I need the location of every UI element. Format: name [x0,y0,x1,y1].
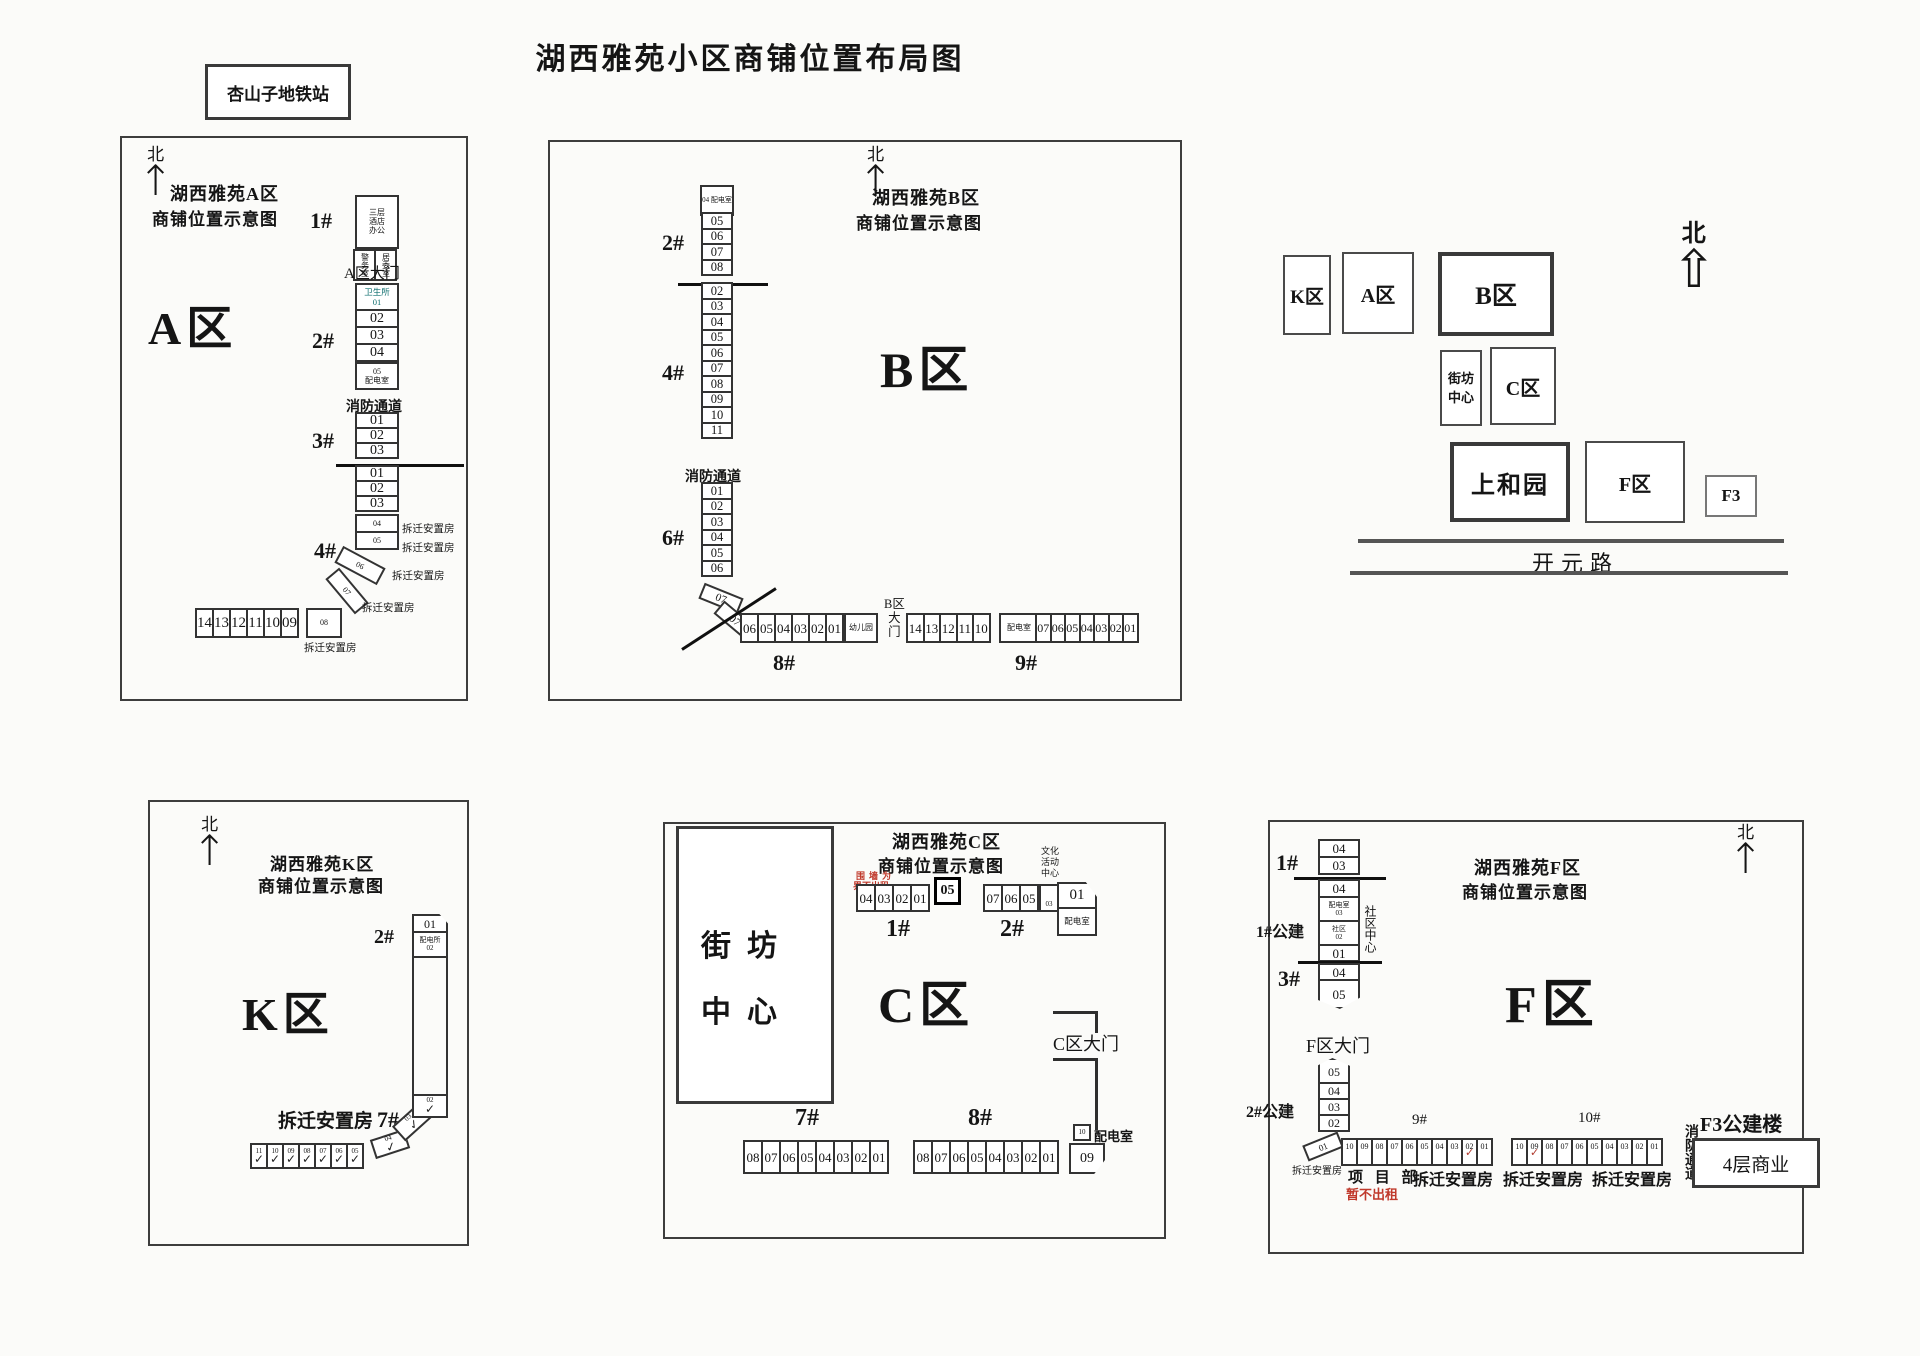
building-1-label: 1# [310,208,332,234]
resettle-cell: 05 [355,531,399,550]
building-2-label: 2# [312,328,334,354]
community-center-side-label: 社区中心 [1362,905,1379,967]
shop-cell: 07 [983,884,1003,912]
shop-cell: 01 ✓ [1646,1138,1663,1166]
jiefang-line: 中心 [1448,388,1474,408]
shop-cell: 05 [797,1140,817,1174]
shop-cell: 06 [701,560,733,578]
cell-number: 05 [1591,1143,1599,1151]
row-1-label: 1# [886,916,910,943]
row-10-label: 10# [1578,1110,1601,1127]
row-2-label: 2# [1000,916,1024,943]
panel-b-subtitle: 商铺位置示意图 [856,209,982,234]
cell-text: 05 [373,368,381,376]
power-room-cell: 配电室 [999,613,1039,643]
shop-cell: 03 [1003,1140,1023,1174]
cell-text: 配电室 [365,377,389,385]
resettle-note: 拆迁安置房 [1503,1166,1583,1190]
power-room-cell: 配电室 03 [1318,896,1360,922]
shop-cell: 01 [1039,1140,1059,1174]
resettle-7-label: 拆迁安置房 7# [278,1106,399,1133]
resettle-note: 拆迁安置房 [402,521,455,536]
gate-bracket-top [1053,1011,1097,1014]
cell-number: 06 [1576,1143,1584,1151]
cell-text: 社区 [1332,926,1346,933]
row-7-cells: 11 ✓ 10 ✓ 09 ✓ 08 ✓ 07 ✓ 06 ✓ 05 ✓ [252,1143,364,1169]
row-1-cells: 04030201 [858,884,930,912]
building-2-label: 2# [662,230,684,256]
gate-c-label: C区大门 [1053,1030,1119,1056]
shop-cell: 02 [851,1140,871,1174]
building-2-label: 2# [374,926,394,949]
check-mark-icon: ✓ [302,1153,312,1165]
cell-number: 08 [1546,1143,1554,1151]
scanned-layout-page: 湖西雅苑小区商铺位置布局图 杏山子地铁站 北 ↑ 湖西雅苑A区 商铺位置示意图 … [0,0,1920,1356]
building-2-cells: 020304 [355,311,399,362]
g2-label: 2#公建 [1246,1098,1294,1122]
panel-b-title: 湖西雅苑B区 [872,184,980,210]
gate-a-label: A区大门 [344,262,400,283]
gate-b-line: B区 [884,598,905,612]
gate-b-line: 大 [884,612,905,626]
jiefang-line: 街坊 [701,921,793,965]
overview-zone-b: B区 [1438,252,1554,336]
cell-text: 三层 [369,209,385,217]
resettle-cell: 08 [306,608,342,638]
cell-text: 02 [427,945,434,952]
row-9-right-cells: 07060504030201 [1037,613,1139,643]
gate-bracket-bottom-leg [1095,1058,1098,1130]
panel-k-subtitle: 商铺位置示意图 [258,872,384,897]
row-8-label: 8# [968,1105,992,1132]
shop-cell: 03 [355,495,399,512]
zone-b-label: B区 [880,330,973,402]
cell-number: 07 [1561,1143,1569,1151]
shop-cell: 08 [743,1140,763,1174]
cell-number: 05 [1421,1143,1429,1151]
community-cell: 社区 02 [1318,920,1360,946]
building-2-cells: 05060708 [701,214,733,276]
cell-number: 09 [1361,1143,1369,1151]
cell-text: 02 [1336,934,1343,941]
gate-b-line: 门 [884,626,905,640]
check-mark-icon: ✓ [1465,1148,1474,1159]
building-6-cells: 010203040506 [701,484,733,577]
kindergarten-cell: 幼儿园 [844,613,878,643]
gate-f-label: F区大门 [1306,1032,1370,1058]
cell-text: 酒店 [369,218,385,226]
shop-cell: 01 [1122,613,1139,643]
check-mark-icon: ✓ [1530,1148,1539,1159]
cell-number: 04 [1606,1143,1614,1151]
cell-number: 07 [1391,1143,1399,1151]
culture-line: 中心 [1041,868,1059,879]
culture-cell: 03 [1039,884,1059,912]
check-mark-icon: ✓ [254,1153,264,1165]
bottom-row-a: 141312111009 [197,608,299,638]
row-8-cells: 0807060504030201 [915,1140,1059,1174]
panel-a-title: 湖西雅苑A区 [170,180,279,206]
shop-cell: 08 [701,259,733,277]
cell-number: 03 [1451,1143,1459,1151]
panel-c-subtitle: 商铺位置示意图 [878,852,1004,877]
not-for-rent-note: 暂不出租 [1346,1184,1398,1203]
shop-cell: 08 [913,1140,933,1174]
page-title: 湖西雅苑小区商铺位置布局图 [536,34,965,78]
zone-c-label: C区 [878,965,974,1037]
shop-cell: 04 [985,1140,1005,1174]
metro-station-box: 杏山子地铁站 [205,64,351,120]
shop-cell: 01 [869,1140,889,1174]
road-line-top [1358,539,1784,543]
shop-cell: 三层 酒店 办公 [355,195,399,249]
cell-number: 01 [1481,1143,1489,1151]
cell-text: 配电室 [1329,902,1350,909]
check-mark-icon: ✓ [384,1138,398,1155]
overview-shangheyuan: 上和园 [1450,442,1570,522]
overview-zone-f: F区 [1585,441,1685,523]
row-2-cells: 070605 [985,884,1039,912]
overview-zone-k: K区 [1283,255,1331,335]
north-arrow-icon: ↑ [1728,841,1763,877]
overview-north: 北 ⇧ [1672,222,1716,295]
f3-commercial-box: 4层商业 [1692,1138,1820,1188]
check-mark-icon: ✓ [425,1102,435,1117]
highlighted-cell-05: 05 [934,877,961,905]
culture-center-label: 文化 活动 中心 [1041,846,1059,878]
culture-line: 文化 [1041,846,1059,857]
panel-c-title: 湖西雅苑C区 [892,828,1001,854]
cell-text: 办公 [369,227,385,235]
jiefang-line: 街坊 [1448,369,1474,389]
building-3-label: 3# [1278,966,1300,992]
cell-number: 08 [1376,1143,1384,1151]
row-10-cells: 10 ✓ 09 ✓ 08 ✓ 07 ✓ 06 ✓ 05 ✓ 04 ✓ 03 ✓ … [1513,1138,1663,1166]
zone-k-label: K区 [242,978,334,1044]
clinic-cell: 卫生所 01 [355,283,399,311]
shop-cell: 04 [856,884,876,912]
shop-cell-diagonal: 02 ✓ [412,1094,448,1118]
shop-cell: 10 [972,613,991,643]
gate-bracket-bottom [1053,1058,1097,1061]
row-7-cells: 0807060504030201 [745,1140,889,1174]
shop-cell: 06 [949,1140,969,1174]
shop-cell: 06 [779,1140,799,1174]
cell-text: 01 [373,298,382,307]
cell-number: 01 [1651,1143,1659,1151]
overview-jiefang-center: 街坊 中心 [1440,350,1482,426]
gate-b-label: B区 大 门 [884,598,905,639]
mini-power-cell: 10 [1073,1124,1091,1141]
building-6-label: 6# [662,525,684,551]
resettle-note: 拆迁安置房 [1592,1166,1672,1190]
shop-cell: 01 [910,884,930,912]
building-2-power: 05 配电室 [355,364,399,390]
shop-cell: 02 [892,884,912,912]
power-room-cell: 05 配电室 [355,362,399,390]
panel-f-north: 北 ↑ [1728,824,1763,877]
building-2-column: 卫生所 01 [355,285,399,311]
cell-number: 03 [1621,1143,1629,1151]
building-4-side-cells: 04 05 [355,516,399,550]
cell-text: 03 [1336,910,1343,917]
shop-cell: 02 [1021,1140,1041,1174]
zone-f-label: F区 [1505,962,1599,1037]
building-strip [412,956,448,1096]
cell-number: 04 [1436,1143,1444,1151]
check-mark-icon: ✓ [318,1153,328,1165]
shop-cell: 09 [280,608,299,638]
cell-number: 10 [1516,1143,1524,1151]
building-1-top: 三层 酒店 办公 [355,197,399,249]
resettle-note: 拆迁安置房 [362,600,415,615]
road-line-bottom [1350,571,1788,575]
check-mark-icon: ✓ [286,1153,296,1165]
shop-cell: 06 [1001,884,1021,912]
north-arrow-icon: ↑ [192,833,227,869]
north-arrow-icon: ↑ [138,163,173,199]
shop-cell: 04 [355,343,399,362]
culture-line: 活动 [1041,857,1059,868]
resettle-note: 拆迁安置房 [304,640,357,655]
overview-zone-c: C区 [1490,347,1556,425]
row-9-label: 9# [1412,1112,1427,1129]
jiefang-center-box: 街坊 中心 [676,826,834,1104]
g1-label: 1#公建 [1256,918,1304,942]
cell-number: 10 [1346,1143,1354,1151]
metro-station-label: 杏山子地铁站 [227,80,329,105]
shop-cell: 07 [761,1140,781,1174]
building-4-label: 4# [662,360,684,386]
shop-cell: 03 [833,1140,853,1174]
shop-cell: 07 [931,1140,951,1174]
shop-cell: 03 [355,442,399,459]
shop-cell: 05 [1019,884,1039,912]
shop-cell: 01 [825,613,844,643]
resettle-note: 拆迁安置房 [278,1111,373,1132]
row-7-label: 7# [795,1105,819,1132]
row-8-label: 8# [773,650,795,676]
panel-f-title: 湖西雅苑F区 [1474,854,1581,880]
shop-cell: 04 [815,1140,835,1174]
shop-cell: 05 ✓ [346,1143,364,1169]
cell-text: 卫生所 [364,288,390,297]
overview-f3: F3 [1705,475,1757,517]
shop-cell: 01 ✓ [1476,1138,1493,1166]
building-3-label: 3# [312,428,334,454]
building-4-cells: 02030405060708091011 [701,284,733,439]
resettle-note: 拆迁安置房 [1292,1162,1342,1177]
row-9-left-cells: 1413121110 [908,613,991,643]
f3-commercial-label: 4层商业 [1723,1150,1790,1177]
row-8-cells: 060504030201 [742,613,844,643]
resettle-note: 拆迁安置房 [402,540,455,555]
shop-cell: 04 [1318,963,1360,981]
panel-a-north: 北 ↑ [138,146,173,199]
north-arrow-icon: ⇧ [1672,246,1716,295]
f3-building-label: F3公建楼 [1700,1108,1782,1137]
jiefang-line: 中心 [701,987,793,1031]
building-1-cells: 0403 [1318,841,1360,875]
power-room-label: 配电室 [1094,1126,1133,1145]
power-room-cell: 配电所 02 [412,931,448,958]
building-4-cells: 010203 [355,467,399,512]
row-9-label: 9# [1015,650,1037,676]
g2-cells: 04 03 02 [1318,1084,1350,1132]
power-room-cell: 配电室 [1057,907,1097,936]
shop-cell: 02 [1318,1114,1350,1132]
shop-cell: 03 [874,884,894,912]
check-mark-icon: ✓ [270,1153,280,1165]
panel-k-north: 北 ↑ [192,816,227,869]
panel-f-subtitle: 商铺位置示意图 [1462,878,1588,903]
overview-zone-a: A区 [1342,252,1414,334]
shop-cell: 01 [1318,944,1360,962]
building-3-cells: 010203 [355,414,399,459]
resettle-note: 拆迁安置房 [1413,1166,1493,1190]
zone-a-label: A区 [148,292,237,358]
cell-number: 06 [1406,1143,1414,1151]
check-mark-icon: ✓ [350,1153,360,1165]
resettle-note: 拆迁安置房 [392,568,445,583]
building-4-label: 4# [314,538,336,564]
cell-number: 02 [1636,1143,1644,1151]
building-1-label: 1# [1276,850,1298,876]
row-9-cells: 10 ✓ 09 ✓ 08 ✓ 07 ✓ 06 ✓ 05 ✓ 04 ✓ 03 ✓ … [1343,1138,1493,1166]
shop-cell: 11 [701,422,733,440]
shop-cell: 03 [1318,856,1360,875]
check-mark-icon: ✓ [334,1153,344,1165]
cell-text: 配电所 [420,937,441,944]
panel-a-subtitle: 商铺位置示意图 [152,205,278,230]
shop-cell: 05 [967,1140,987,1174]
